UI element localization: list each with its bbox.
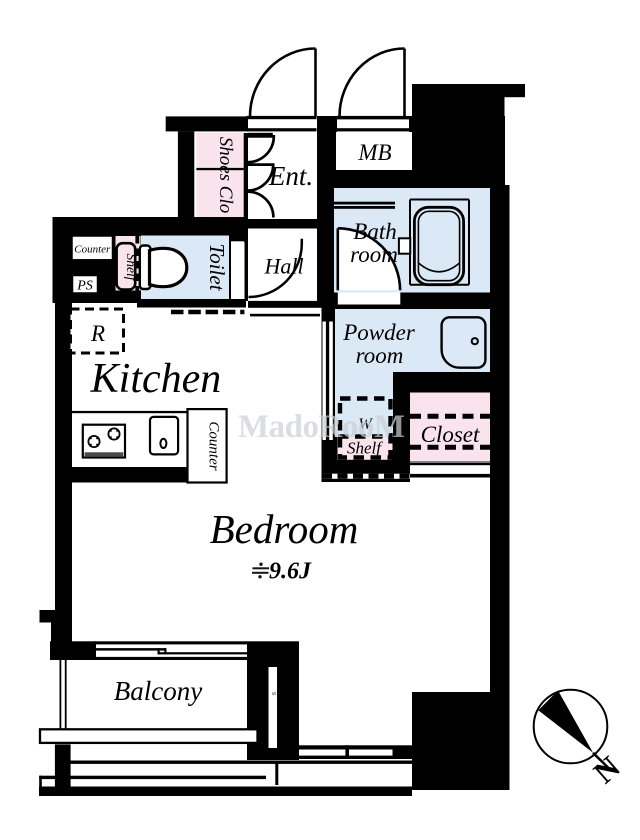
svg-text:room: room [356,343,404,368]
svg-text:Counter: Counter [206,421,222,470]
svg-text:Bath: Bath [353,219,396,244]
svg-text:Kitchen: Kitchen [90,356,222,402]
svg-text:MadoRooM: MadoRooM [238,409,405,445]
svg-text:PS: PS [76,279,93,294]
svg-text:room: room [350,242,398,267]
svg-text:Ent.: Ent. [268,161,313,191]
svg-text:Toilet: Toilet [205,243,229,291]
svg-text:s: s [270,692,279,695]
svg-text:Shelf: Shelf [124,254,139,283]
svg-text:Balcony: Balcony [114,676,202,706]
svg-text:Bedroom: Bedroom [210,506,359,552]
svg-text:MB: MB [357,140,391,165]
svg-text:Shoes Clo: Shoes Clo [215,137,236,214]
svg-text:9.6J: 9.6J [269,559,312,585]
svg-text:R: R [90,321,105,346]
svg-text:Closet: Closet [421,422,480,447]
svg-text:Counter: Counter [74,244,111,256]
svg-text:Powder: Powder [342,320,416,345]
